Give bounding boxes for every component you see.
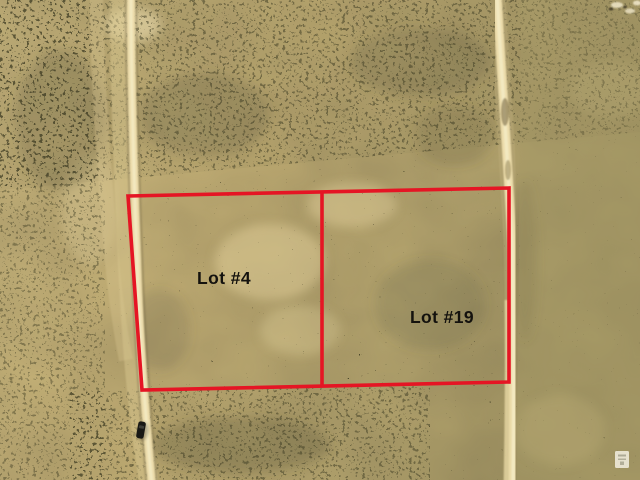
watermark-logo	[615, 451, 629, 468]
lot-4-label: Lot #4	[197, 268, 251, 288]
aerial-lot-photo: Lot #4 Lot #19	[0, 0, 640, 480]
smooth-east-terrain	[517, 0, 640, 480]
lot-19-label: Lot #19	[410, 307, 474, 327]
